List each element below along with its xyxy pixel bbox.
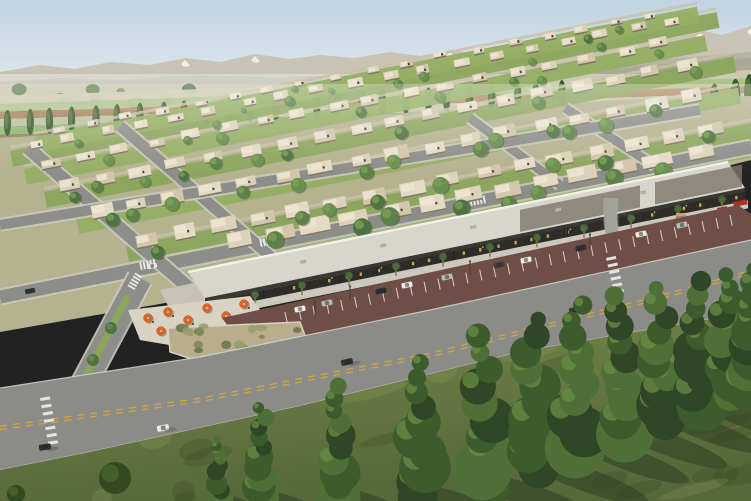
storefront-column xyxy=(453,251,454,260)
umbrella-pole-top xyxy=(225,315,227,317)
tree-foliage xyxy=(253,402,264,413)
umbrella-pole-top xyxy=(167,311,169,313)
umbrella-pole-top xyxy=(243,303,245,305)
storefront-column xyxy=(339,275,340,284)
storefront-column xyxy=(567,228,568,237)
desert-shrub xyxy=(195,327,204,336)
tree-foliage xyxy=(466,324,490,348)
light-pole-head xyxy=(589,233,591,235)
car-windshield xyxy=(298,307,303,312)
light-pole-head xyxy=(469,260,471,262)
yard-tree-highlight xyxy=(616,27,620,31)
yard-tree-highlight xyxy=(538,77,543,82)
yard-tree-highlight xyxy=(70,193,76,199)
tree-foliage-highlight xyxy=(462,372,478,388)
tree-foliage xyxy=(330,378,347,395)
storefront-light xyxy=(530,238,532,241)
car-windshield xyxy=(405,283,410,288)
patio-person xyxy=(172,315,174,317)
car-windshield xyxy=(524,258,529,263)
yard-tree-highlight xyxy=(127,210,134,217)
storefront-sign xyxy=(482,247,483,248)
car-windshield xyxy=(28,289,32,293)
car-windshield xyxy=(150,264,154,268)
storefront-column xyxy=(415,259,416,268)
tree-foliage-highlight xyxy=(413,356,421,364)
desert-shrub xyxy=(248,325,256,333)
tree-foliage xyxy=(530,312,545,327)
yard-tree-highlight xyxy=(296,212,303,219)
median-tree-highlight xyxy=(107,324,113,330)
storefront-sign xyxy=(686,205,687,206)
storefront-light xyxy=(735,196,737,199)
yard-tree-highlight xyxy=(107,214,114,221)
corner-tree-highlight xyxy=(8,486,18,496)
storefront-light xyxy=(412,262,414,265)
scene-svg xyxy=(0,0,751,501)
yard-tree-highlight xyxy=(355,220,364,229)
yard-tree-highlight xyxy=(152,247,159,254)
yard-tree-highlight xyxy=(382,209,391,218)
corner-tree-highlight xyxy=(101,464,119,482)
tree-foliage-highlight xyxy=(722,281,730,289)
tree-foliage-highlight xyxy=(563,313,571,321)
patio-person xyxy=(152,321,154,323)
storefront-light xyxy=(651,213,653,216)
storefront-light xyxy=(463,252,465,255)
yard-tree-highlight xyxy=(510,78,514,82)
storefront-light xyxy=(328,279,330,282)
atmospheric-haze xyxy=(0,84,751,174)
car-windshield xyxy=(579,246,584,251)
median-tree-highlight xyxy=(89,356,95,362)
storefront-column xyxy=(643,213,644,222)
yard-tree-highlight xyxy=(655,50,659,54)
yard-tree-highlight xyxy=(238,187,244,193)
yard-tree-highlight xyxy=(166,198,173,205)
depth-haze xyxy=(0,84,751,174)
umbrella-pole-top xyxy=(147,317,149,319)
yard-tree-highlight xyxy=(529,59,533,63)
patio-person xyxy=(192,323,194,325)
car-windshield xyxy=(497,263,502,268)
tree-foliage-highlight xyxy=(575,297,584,306)
monument-cap xyxy=(676,213,685,216)
yard-tree-highlight xyxy=(434,179,442,187)
storefront-light xyxy=(514,241,516,244)
tree-foliage xyxy=(408,368,426,386)
storefront-light xyxy=(547,234,549,237)
tree-foliage xyxy=(691,271,711,291)
umbrella-pole-top xyxy=(187,319,189,321)
yard-tree-highlight xyxy=(584,35,588,39)
yard-tree-highlight xyxy=(394,80,399,85)
car-windshield xyxy=(325,301,330,306)
tree-foliage xyxy=(412,354,429,371)
tree-foliage xyxy=(718,267,733,282)
umbrella-pole-top xyxy=(160,330,162,332)
yard-tree-highlight xyxy=(420,73,425,78)
umbrella-pole-top xyxy=(206,307,208,309)
tree-foliage xyxy=(573,296,592,315)
storefront-sign xyxy=(381,267,382,268)
yard-tree-highlight xyxy=(502,198,510,206)
storefront-sign xyxy=(654,212,655,213)
storefront-light xyxy=(428,259,430,262)
storefront-column xyxy=(263,290,264,299)
tree-foliage-highlight xyxy=(468,326,479,337)
car-windshield xyxy=(445,275,450,280)
tree-foliage xyxy=(649,281,664,296)
yard-tree-highlight xyxy=(691,67,697,73)
desert-shrub xyxy=(194,348,203,353)
tree-foliage xyxy=(213,436,221,444)
yard-tree-highlight xyxy=(372,196,379,203)
car-windshield xyxy=(639,232,644,237)
storefront-sign xyxy=(331,277,332,278)
storefront-light xyxy=(683,207,685,210)
storefront-column xyxy=(377,267,378,276)
storefront-light xyxy=(479,248,481,251)
patio-person xyxy=(248,307,250,309)
desert-shrub xyxy=(183,327,190,335)
storefront-light xyxy=(360,272,362,275)
tree-foliage xyxy=(721,279,738,296)
storefront-sign xyxy=(570,229,571,230)
tree-foliage xyxy=(605,286,624,305)
desert-shrub xyxy=(221,341,231,349)
tree-foliage-highlight xyxy=(252,421,260,429)
car-windshield xyxy=(680,223,685,228)
tree-foliage xyxy=(562,312,581,331)
yard-tree-highlight xyxy=(597,43,601,47)
yard-tree-highlight xyxy=(455,201,463,209)
desert-shrub xyxy=(259,335,265,339)
aerial-render-image xyxy=(0,0,751,501)
light-pole-head xyxy=(349,285,351,287)
storefront-light xyxy=(497,244,499,247)
yard-tree-highlight xyxy=(92,182,98,188)
desert-shrub xyxy=(293,327,302,333)
storefront-column xyxy=(529,236,530,245)
car-windshield xyxy=(379,289,384,294)
yard-tree-highlight xyxy=(532,187,540,195)
storefront-light xyxy=(293,286,295,289)
yard-tree-highlight xyxy=(268,233,277,242)
tree-foliage-highlight xyxy=(253,403,258,408)
yard-tree-highlight xyxy=(324,204,331,211)
yard-tree-highlight xyxy=(292,179,299,186)
storefront-light xyxy=(699,203,701,206)
yard-tree-highlight xyxy=(141,177,146,182)
